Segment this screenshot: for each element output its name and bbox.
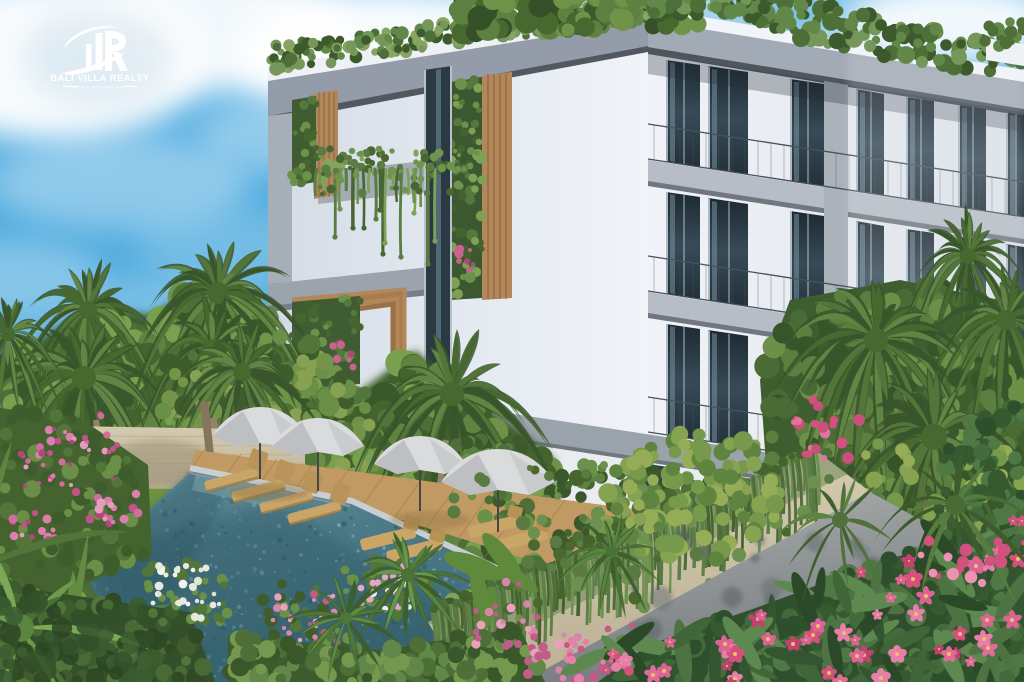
svg-text:BALI VILLA REALTY: BALI VILLA REALTY	[50, 73, 149, 83]
svg-text:BY KGT PROPERTY BALI: BY KGT PROPERTY BALI	[74, 86, 126, 90]
